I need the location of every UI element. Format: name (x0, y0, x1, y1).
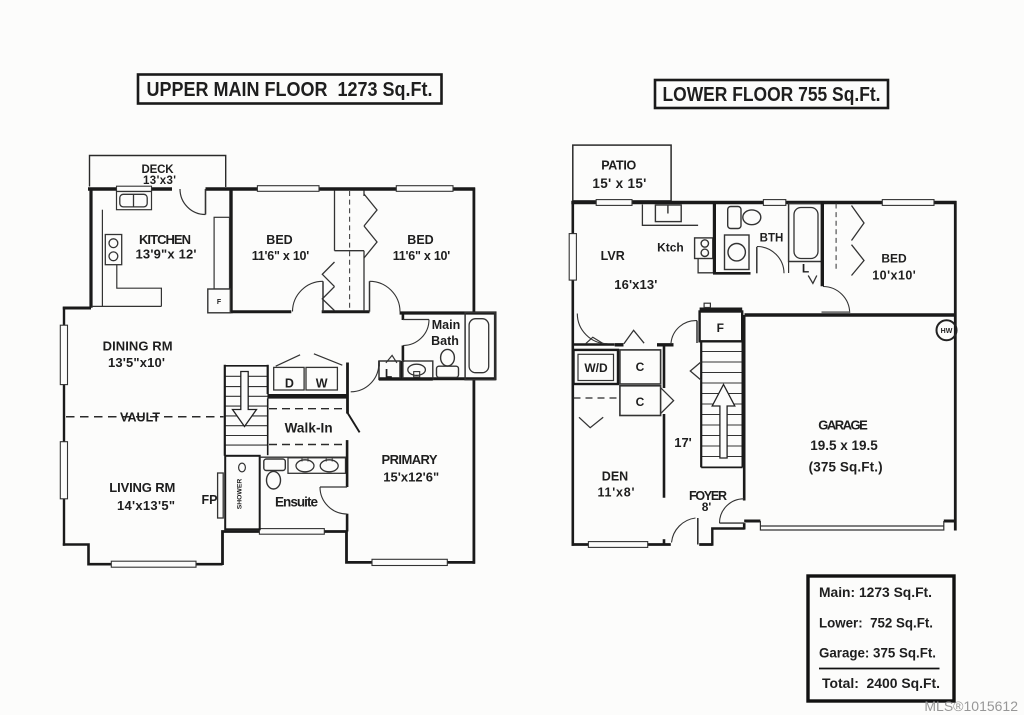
svg-text:15'x12'6": 15'x12'6" (383, 469, 439, 484)
svg-text:C: C (636, 395, 645, 409)
svg-text:11'6" x 10': 11'6" x 10' (393, 249, 451, 263)
svg-text:14'x13'5": 14'x13'5" (117, 498, 175, 513)
svg-text:VAULT: VAULT (120, 411, 160, 425)
svg-text:FP: FP (202, 493, 218, 507)
svg-text:Ensuite: Ensuite (275, 494, 318, 509)
svg-text:Total: 2400 Sq.Ft.: Total: 2400 Sq.Ft. (822, 675, 940, 691)
svg-text:KITCHEN: KITCHEN (139, 232, 191, 247)
svg-text:PATIO: PATIO (601, 159, 636, 173)
svg-text:Bath: Bath (431, 334, 459, 348)
svg-text:F: F (717, 321, 724, 335)
svg-text:13'x3': 13'x3' (143, 175, 176, 187)
svg-text:DEN: DEN (602, 470, 628, 484)
svg-text:Ktch: Ktch (657, 240, 684, 254)
svg-text:Lower: 752 Sq.Ft.: Lower: 752 Sq.Ft. (819, 615, 933, 631)
svg-text:13'9"x 12': 13'9"x 12' (136, 247, 197, 262)
svg-text:8': 8' (702, 500, 712, 514)
svg-text:DINING RM: DINING RM (103, 339, 173, 354)
svg-text:10'x10': 10'x10' (872, 269, 916, 283)
svg-text:BTH: BTH (760, 233, 784, 245)
svg-text:L: L (802, 262, 809, 276)
svg-text:LIVING RM: LIVING RM (109, 480, 175, 495)
svg-text:MLS®1015612: MLS®1015612 (924, 698, 1018, 714)
svg-text:D: D (285, 376, 294, 390)
svg-text:16'x13': 16'x13' (614, 277, 657, 292)
svg-text:BED: BED (266, 233, 292, 247)
svg-text:SHOWER: SHOWER (237, 479, 244, 510)
svg-text:15' x 15': 15' x 15' (592, 176, 646, 191)
svg-text:17': 17' (674, 435, 692, 450)
svg-text:Walk-In: Walk-In (285, 420, 333, 435)
svg-text:GARAGE: GARAGE (818, 418, 868, 433)
svg-text:Main: 1273 Sq.Ft.: Main: 1273 Sq.Ft. (819, 584, 932, 600)
svg-text:(375 Sq.Ft.): (375 Sq.Ft.) (809, 460, 883, 475)
svg-text:19.5 x 19.5: 19.5 x 19.5 (810, 438, 878, 453)
svg-text:W/D: W/D (584, 361, 608, 375)
svg-text:Main: Main (432, 318, 460, 332)
svg-text:Garage: 375 Sq.Ft.: Garage: 375 Sq.Ft. (819, 645, 936, 661)
svg-text:PRIMARY: PRIMARY (382, 452, 438, 467)
svg-text:LVR: LVR (601, 249, 625, 263)
svg-text:HW: HW (941, 328, 953, 335)
svg-text:11'6" x 10': 11'6" x 10' (252, 249, 310, 263)
svg-text:BED: BED (407, 233, 433, 247)
svg-text:BED: BED (881, 252, 907, 266)
svg-text:LOWER FLOOR 755 Sq.Ft.: LOWER FLOOR 755 Sq.Ft. (663, 84, 881, 106)
svg-text:F: F (217, 299, 222, 306)
svg-text:C: C (636, 360, 645, 374)
svg-text:13'5"x10': 13'5"x10' (108, 355, 165, 370)
svg-text:UPPER MAIN FLOOR 1273 Sq.Ft.: UPPER MAIN FLOOR 1273 Sq.Ft. (147, 78, 433, 101)
svg-text:W: W (316, 376, 328, 390)
svg-text:11'x8': 11'x8' (598, 486, 635, 500)
